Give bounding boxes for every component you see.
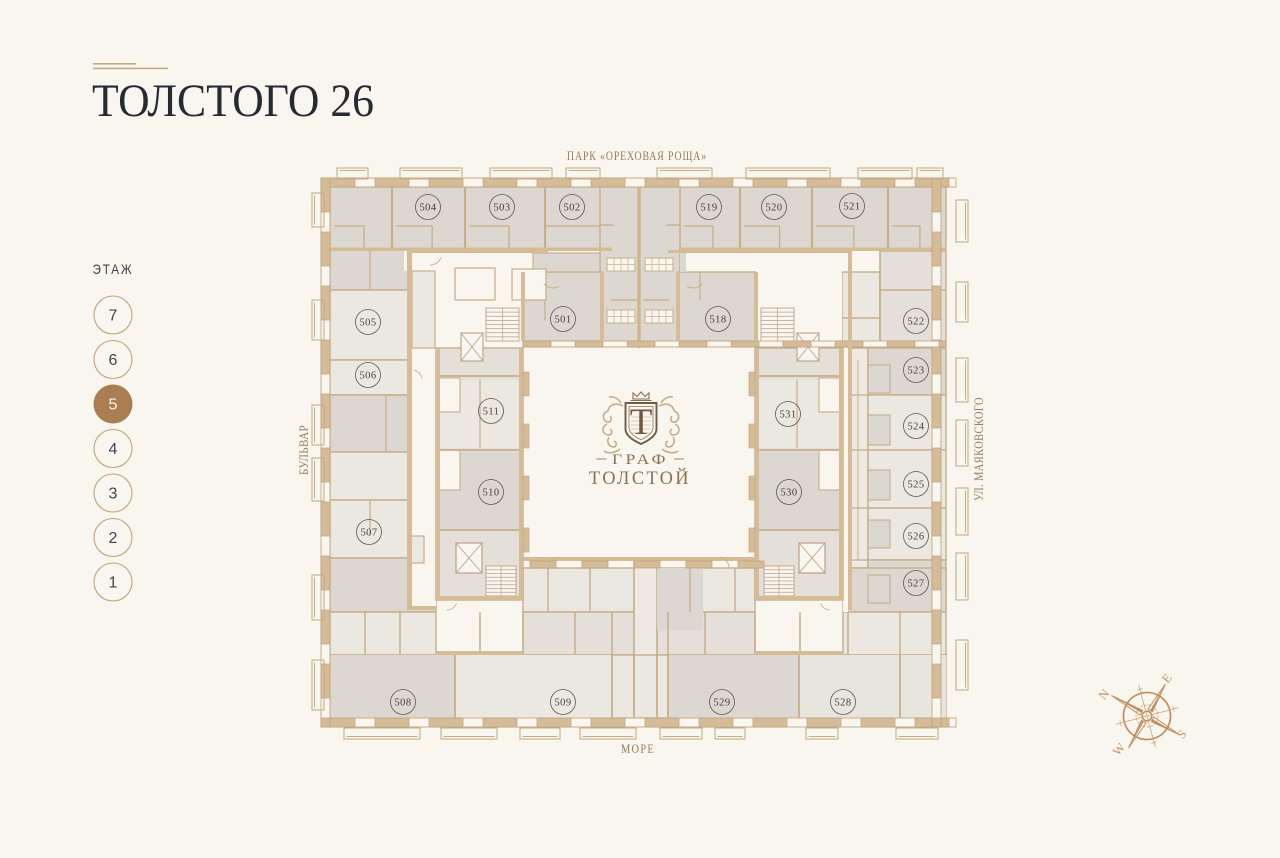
svg-text:5: 5 [109, 397, 118, 414]
svg-text:ПАРК «ОРЕХОВАЯ РОЩА»: ПАРК «ОРЕХОВАЯ РОЩА» [567, 148, 707, 163]
svg-text:518: 518 [710, 315, 727, 326]
svg-text:1: 1 [109, 575, 118, 592]
svg-text:ГРАФ: ГРАФ [612, 452, 669, 468]
svg-text:4: 4 [109, 441, 118, 458]
svg-text:530: 530 [781, 488, 798, 499]
svg-text:ТОЛСТОЙ: ТОЛСТОЙ [589, 468, 691, 489]
svg-text:520: 520 [766, 203, 783, 214]
svg-text:ЭТАЖ: ЭТАЖ [93, 261, 134, 277]
svg-text:519: 519 [701, 203, 718, 214]
svg-text:525: 525 [908, 480, 925, 491]
svg-text:3: 3 [109, 486, 118, 503]
svg-text:504: 504 [420, 203, 437, 214]
svg-text:527: 527 [908, 579, 925, 590]
svg-text:МОРЕ: МОРЕ [621, 741, 655, 756]
svg-text:523: 523 [908, 366, 925, 377]
svg-text:2: 2 [109, 530, 118, 547]
svg-text:БУЛЬВАР: БУЛЬВАР [296, 425, 311, 475]
svg-text:УЛ. МАЯКОВСКОГО: УЛ. МАЯКОВСКОГО [972, 397, 986, 501]
svg-text:522: 522 [908, 317, 925, 328]
svg-text:505: 505 [360, 318, 377, 329]
svg-text:507: 507 [361, 528, 378, 539]
svg-text:524: 524 [908, 422, 925, 433]
svg-text:Т: Т [630, 402, 653, 443]
svg-text:508: 508 [395, 698, 412, 709]
svg-text:503: 503 [494, 203, 511, 214]
svg-text:509: 509 [555, 698, 572, 709]
svg-text:506: 506 [360, 371, 377, 382]
svg-text:529: 529 [714, 698, 731, 709]
svg-text:6: 6 [109, 352, 118, 369]
svg-text:502: 502 [564, 203, 581, 214]
svg-text:511: 511 [483, 407, 500, 418]
svg-text:7: 7 [109, 308, 118, 325]
svg-text:528: 528 [835, 698, 852, 709]
svg-text:526: 526 [908, 532, 925, 543]
svg-text:501: 501 [555, 315, 572, 326]
svg-text:531: 531 [780, 410, 797, 421]
svg-text:ТОЛСТОГО 26: ТОЛСТОГО 26 [92, 75, 374, 127]
svg-text:521: 521 [844, 202, 861, 213]
svg-text:510: 510 [483, 488, 500, 499]
